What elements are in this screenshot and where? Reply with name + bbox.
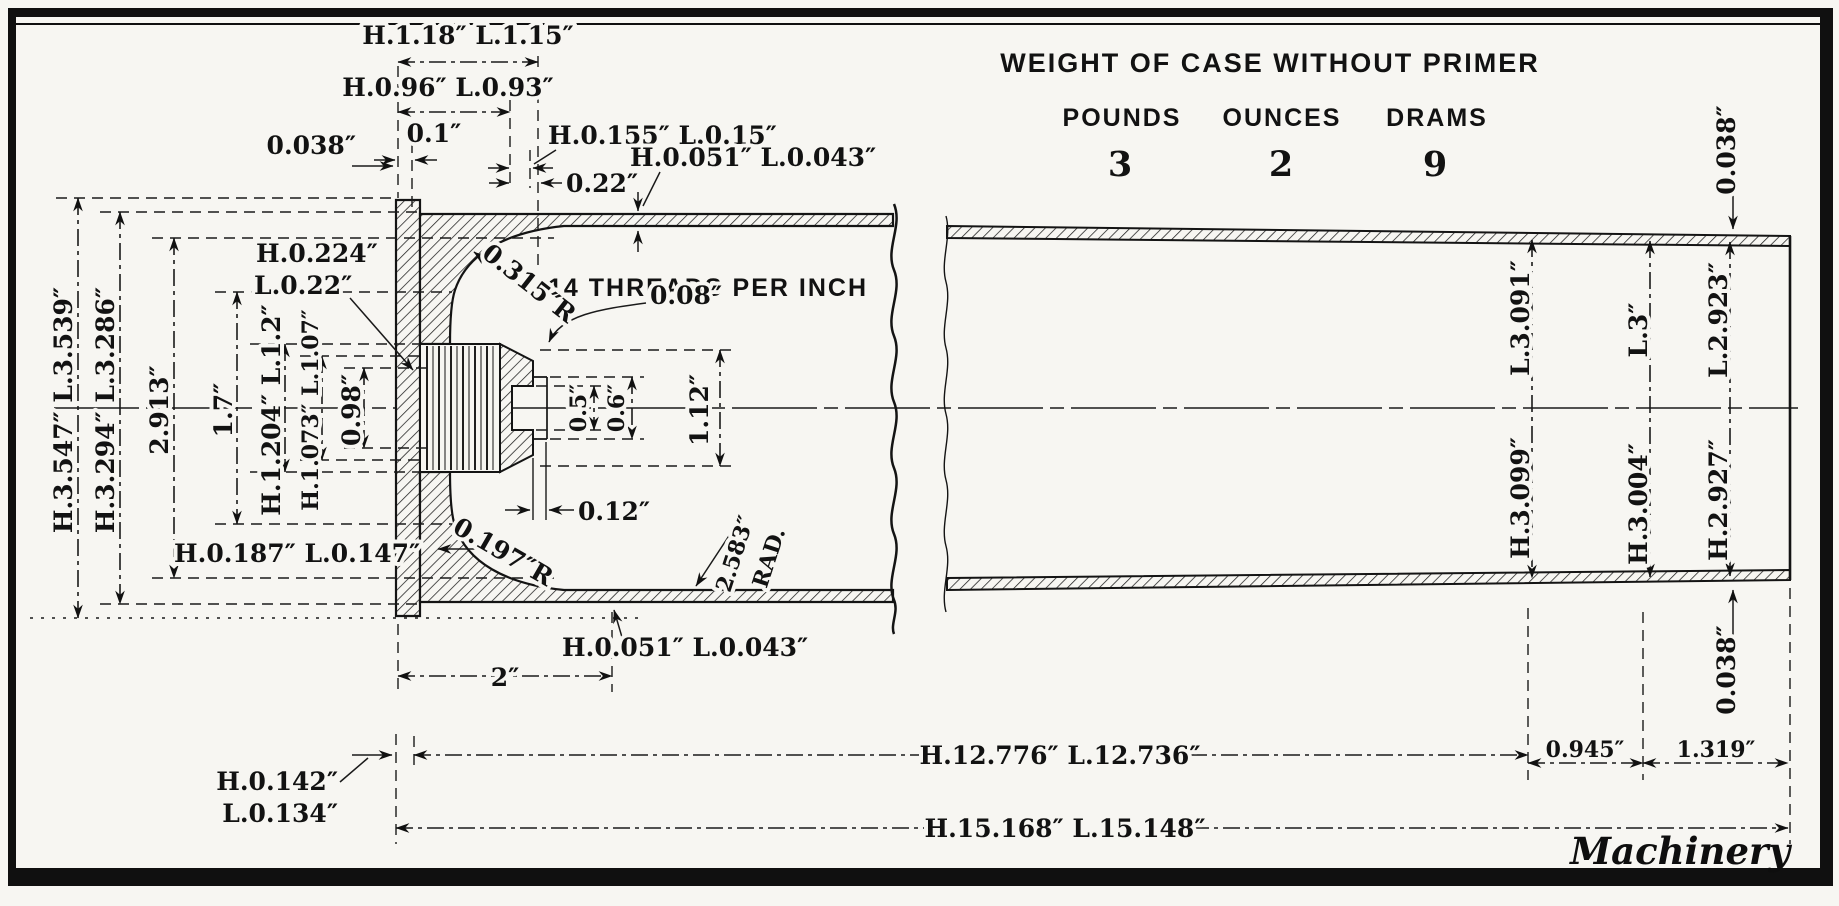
dim-1-18: H.1.18″ L.1.15″ xyxy=(362,21,573,50)
weight-table: WEIGHT OF CASE WITHOUT PRIMER POUNDS OUN… xyxy=(1000,48,1539,185)
dim-right-2927: H.2.927″ xyxy=(1704,439,1733,561)
dim-0-038-top: 0.038″ xyxy=(267,131,356,160)
break-line-right xyxy=(944,216,947,612)
dim-0945: 0.945″ xyxy=(1546,737,1625,763)
dim-left-1204: H.1.204″ L.1.2″ xyxy=(257,304,286,515)
dim-0-22: 0.22″ xyxy=(566,169,638,198)
weight-val-ounces: 2 xyxy=(1269,144,1293,185)
dim-left-3547: H.3.547″ L.3.539″ xyxy=(49,287,78,533)
dim-0038-botright: 0.038″ xyxy=(1712,625,1741,714)
dim-0134: L.0.134″ xyxy=(222,799,338,828)
upper-wall-right xyxy=(947,226,1790,246)
dim-wall-top: H.0.051″ L.0.043″ xyxy=(630,143,876,172)
dim-right-2923: L.2.923″ xyxy=(1704,262,1733,378)
dimension-labels: H.1.18″ L.1.15″ H.0.96″ L.0.93″ 0.1″ 0.0… xyxy=(49,21,1756,843)
weight-table-title: WEIGHT OF CASE WITHOUT PRIMER xyxy=(1000,48,1539,78)
dim-left-3294: H.3.294″ L.3.286″ xyxy=(91,287,120,533)
weight-col-ounces: OUNCES xyxy=(1223,104,1342,132)
dim-left-098: 0.98″ xyxy=(337,374,366,446)
dim-0-96: H.0.96″ L.0.93″ xyxy=(342,73,553,102)
weight-col-pounds: POUNDS xyxy=(1063,104,1182,132)
dim-right-3004: H.3.004″ xyxy=(1624,443,1653,565)
lower-wall-right xyxy=(947,570,1790,590)
drawing-sheet: H.1.18″ L.1.15″ H.0.96″ L.0.93″ 0.1″ 0.0… xyxy=(0,0,1839,906)
weight-val-drams: 9 xyxy=(1423,144,1447,185)
dim-2: 2″ xyxy=(491,663,520,692)
dim-right-3099: H.3.099″ xyxy=(1506,437,1535,559)
dim-left-2913: 2.913″ xyxy=(145,365,174,454)
dim-0-5: 0.5″ xyxy=(566,384,592,432)
dim-0-1: 0.1″ xyxy=(407,119,462,148)
weight-val-pounds: 3 xyxy=(1108,144,1132,185)
dim-right-3091: L.3.091″ xyxy=(1506,260,1535,376)
dim-right-l3: L.3″ xyxy=(1624,303,1653,358)
dim-left-1073: H.1.073″ L.1.07″ xyxy=(298,309,324,511)
dim-0038-topright: 0.038″ xyxy=(1712,105,1741,194)
dim-12776: H.12.776″ L.12.736″ xyxy=(919,741,1200,770)
dim-0-224-l: L.0.22″ xyxy=(254,271,352,300)
dim-wall-bottom: H.0.051″ L.0.043″ xyxy=(562,633,808,662)
dim-0-224-h: H.0.224″ xyxy=(256,239,378,268)
dim-1319: 1.319″ xyxy=(1677,737,1756,763)
dim-15168: H.15.168″ L.15.148″ xyxy=(924,814,1205,843)
dim-0142: H.0.142″ xyxy=(216,767,338,796)
break-line-left xyxy=(891,204,896,634)
weight-col-drams: DRAMS xyxy=(1386,104,1488,132)
dim-1-12: 1.12″ xyxy=(685,374,714,446)
dim-left-17: 1.7″ xyxy=(209,383,238,438)
dim-0-6: 0.6″ xyxy=(604,384,630,432)
credit-machinery: Machinery xyxy=(1568,829,1792,873)
dim-0-08: 0.08″ xyxy=(650,281,722,310)
dim-0-12: 0.12″ xyxy=(578,497,650,526)
dim-0-187: H.0.187″ L.0.147″ xyxy=(174,539,420,568)
thread-boss xyxy=(420,344,500,472)
cartridge-case-engineering-drawing: H.1.18″ L.1.15″ H.0.96″ L.0.93″ 0.1″ 0.0… xyxy=(0,0,1839,906)
